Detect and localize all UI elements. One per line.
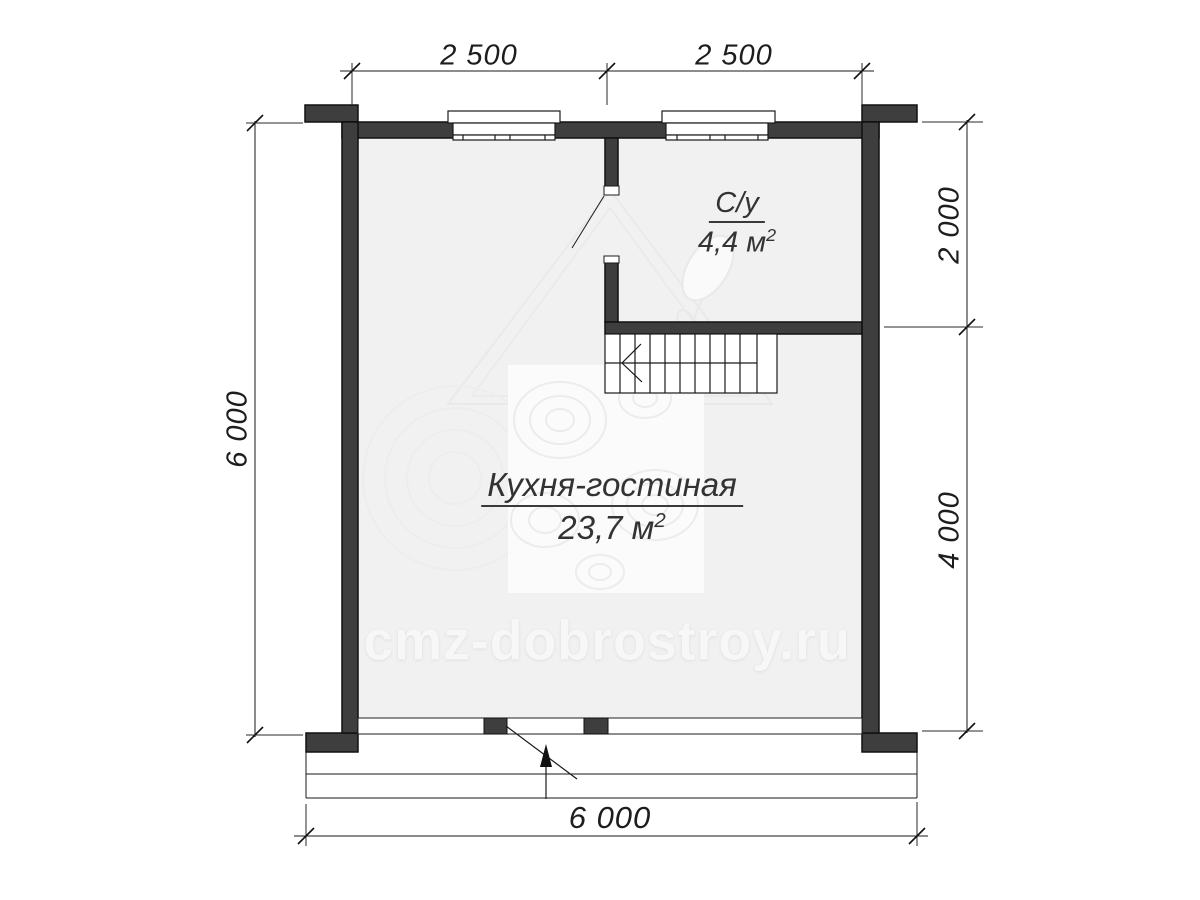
bottom-opening bbox=[358, 718, 862, 734]
room-name: Кухня-гостиная bbox=[481, 466, 743, 507]
dim-label-top-2: 2 500 bbox=[695, 40, 773, 73]
wall-partition-upper bbox=[605, 138, 618, 190]
pilaster-top-left bbox=[305, 105, 358, 122]
porch-steps bbox=[306, 752, 917, 798]
room-name: С/у bbox=[709, 187, 765, 223]
staircase bbox=[605, 334, 777, 393]
wall-bathroom-south bbox=[605, 322, 862, 334]
window-1 bbox=[448, 111, 560, 140]
wall-stub-right bbox=[584, 718, 608, 734]
door-jamb-bottom bbox=[604, 256, 619, 263]
wall-left bbox=[342, 122, 358, 733]
wall-stub-left bbox=[484, 718, 507, 734]
dim-label-right-2: 4 000 bbox=[934, 491, 967, 569]
entrance-arrow-head bbox=[540, 744, 552, 767]
dim-label-top-1: 2 500 bbox=[440, 40, 518, 73]
pilaster-bottom-left bbox=[306, 733, 358, 752]
window-2 bbox=[662, 111, 775, 140]
room-label-bathroom: С/у 4,4 м2 bbox=[698, 187, 776, 260]
wall-top bbox=[342, 122, 879, 138]
wall-right bbox=[862, 122, 879, 733]
dim-label-right-1: 2 000 bbox=[934, 186, 967, 264]
room-area: 4,4 м2 bbox=[698, 225, 776, 260]
dim-label-left: 6 000 bbox=[222, 390, 255, 468]
room-area: 23,7 м2 bbox=[481, 509, 743, 547]
site-watermark: cmz-dobrostroy.ru bbox=[363, 608, 850, 673]
wall-partition-lower bbox=[605, 262, 618, 322]
door-jamb-top bbox=[604, 186, 619, 195]
room-label-kitchen: Кухня-гостиная 23,7 м2 bbox=[481, 466, 743, 547]
pilaster-top-right bbox=[862, 105, 917, 122]
entrance-marker bbox=[506, 726, 577, 799]
pilaster-bottom-right bbox=[862, 733, 917, 752]
floor-plan-canvas: cmz-dobrostroy.ru 2 500 2 500 6 000 2 00… bbox=[0, 0, 1200, 900]
floor-plan-drawing bbox=[0, 0, 1200, 900]
dim-label-bottom: 6 000 bbox=[569, 800, 652, 836]
